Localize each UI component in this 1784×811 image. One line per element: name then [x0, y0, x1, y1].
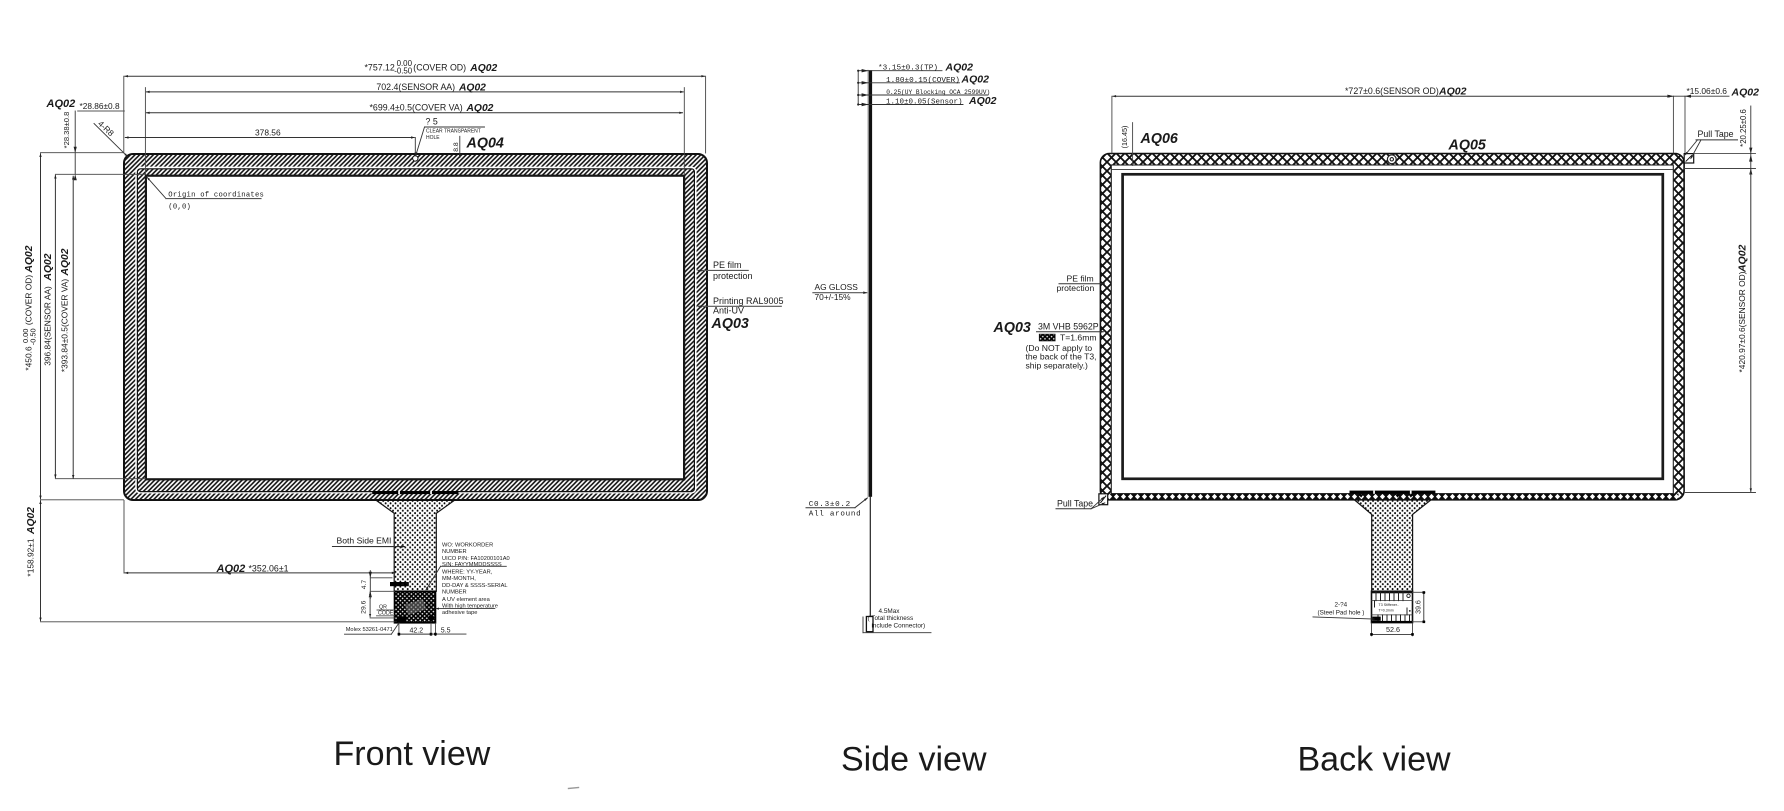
svg-text:AQ02: AQ02 [46, 98, 76, 110]
svg-text:include Connector): include Connector) [872, 622, 926, 629]
svg-text:MM-MONTH,: MM-MONTH, [442, 576, 476, 582]
svg-text:PE film: PE film [1067, 273, 1094, 283]
svg-text:AQ02: AQ02 [24, 245, 35, 273]
svg-text:4.7: 4.7 [361, 580, 368, 590]
svg-text:3M VHB 5962P: 3M VHB 5962P [1038, 322, 1099, 332]
svg-text:T=1.6mm: T=1.6mm [1060, 332, 1097, 342]
svg-text:AQ02: AQ02 [216, 563, 246, 575]
svg-text:QR: QR [379, 604, 387, 610]
svg-text:702.4(SENSOR AA): 702.4(SENSOR AA) [376, 82, 455, 92]
svg-text:adhesive tape: adhesive tape [442, 610, 477, 616]
svg-text:ship separately.): ship separately.) [1026, 360, 1089, 370]
svg-text:( Total thickness: ( Total thickness [868, 615, 914, 622]
svg-text:*158.92±1: *158.92±1 [26, 538, 36, 576]
svg-text:(Steel Pad hole ): (Steel Pad hole ) [1318, 610, 1365, 617]
svg-text:*3.15±0.3(TP): *3.15±0.3(TP) [878, 65, 938, 73]
svg-text:(COVER OD): (COVER OD) [24, 275, 34, 325]
svg-text:*757.12: *757.12 [365, 62, 395, 72]
svg-text:1.10±0.05(Sensor): 1.10±0.05(Sensor) [886, 99, 963, 107]
svg-text:AQ02: AQ02 [1731, 87, 1760, 99]
svg-text:All around: All around [809, 510, 862, 518]
svg-text:29.6: 29.6 [360, 600, 367, 613]
svg-text:T=0.3mm: T=0.3mm [1379, 609, 1394, 613]
svg-text:AQ05: AQ05 [1448, 138, 1487, 154]
svg-text:2-?4: 2-?4 [1335, 601, 1348, 608]
svg-text:AQ02: AQ02 [961, 73, 990, 85]
svg-text:AQ02: AQ02 [1438, 86, 1467, 98]
svg-text:5.5: 5.5 [441, 627, 451, 634]
svg-text:T3 Stiffener..: T3 Stiffener.. [1379, 603, 1399, 607]
svg-text:AQ02: AQ02 [466, 103, 494, 114]
svg-text:CLEAR TRANSPARENT: CLEAR TRANSPARENT [426, 129, 481, 135]
svg-text:AQ02: AQ02 [43, 253, 54, 281]
svg-text:378.56: 378.56 [255, 127, 281, 137]
svg-text:4.5Max: 4.5Max [879, 608, 901, 615]
svg-text:*393.84±0.5(COVER VA): *393.84±0.5(COVER VA) [60, 279, 70, 373]
svg-text:396.84(SENSOR AA): 396.84(SENSOR AA) [43, 286, 53, 366]
svg-text:AQ04: AQ04 [466, 135, 504, 151]
svg-text:42.2: 42.2 [410, 627, 424, 634]
svg-text:*28.38±0.8: *28.38±0.8 [62, 112, 71, 149]
svg-text:AQ02: AQ02 [968, 95, 997, 107]
svg-text:52.6: 52.6 [1386, 625, 1400, 634]
svg-text:AQ02: AQ02 [458, 83, 486, 94]
svg-text:AQ03: AQ03 [711, 316, 749, 332]
svg-text:70+/-15%: 70+/-15% [815, 292, 852, 302]
svg-text:Molex 53261-0471: Molex 53261-0471 [346, 627, 393, 633]
svg-text:*727±0.6(SENSOR OD): *727±0.6(SENSOR OD) [1345, 86, 1439, 96]
svg-text:AG GLOSS: AG GLOSS [815, 282, 859, 292]
svg-text:S/N: FAYYMMDDSSSS: S/N: FAYYMMDDSSSS [442, 562, 502, 568]
svg-text:Pull Tape: Pull Tape [1057, 499, 1093, 509]
svg-text:AQ02: AQ02 [469, 63, 497, 74]
svg-text:Origin of coordinates: Origin of coordinates [168, 191, 264, 199]
svg-text:-0.50: -0.50 [394, 67, 413, 76]
svg-text:(0,0): (0,0) [168, 204, 191, 212]
svg-text:WO: WORKORDER: WO: WORKORDER [442, 542, 493, 548]
svg-text:protection: protection [1057, 283, 1095, 293]
svg-text:*20.25±0.6: *20.25±0.6 [1739, 109, 1748, 147]
svg-text:*15.06±0.6: *15.06±0.6 [1687, 86, 1728, 96]
svg-text:Printing RAL9005: Printing RAL9005 [713, 296, 784, 306]
svg-text:protection: protection [713, 271, 753, 281]
svg-text:*352.06±1: *352.06±1 [249, 563, 289, 573]
svg-text:WHERE: YY-YEAR,: WHERE: YY-YEAR, [442, 570, 493, 576]
svg-text:AQ02: AQ02 [26, 507, 37, 535]
svg-text:4.5: 4.5 [401, 582, 409, 588]
svg-text:AQ02: AQ02 [945, 61, 974, 73]
svg-text:Front view: Front view [334, 735, 491, 773]
svg-text:AQ03: AQ03 [993, 320, 1031, 336]
svg-text:? 5: ? 5 [426, 116, 438, 126]
svg-text:DD-DAY & SSSS-SERIAL: DD-DAY & SSSS-SERIAL [442, 583, 508, 589]
svg-text:8.8: 8.8 [453, 142, 460, 152]
svg-text:A UV element area: A UV element area [442, 597, 491, 603]
svg-text:Both Side EMI: Both Side EMI [337, 536, 392, 546]
svg-text:Pull Tape: Pull Tape [1698, 129, 1734, 139]
svg-text:Anti-UV: Anti-UV [713, 305, 744, 315]
svg-text:*28.86±0.8: *28.86±0.8 [80, 101, 120, 111]
svg-text:*420.97±0.6(SENSOR OD): *420.97±0.6(SENSOR OD) [1737, 271, 1747, 372]
svg-text:Side view: Side view [841, 741, 987, 779]
svg-text:(16.45): (16.45) [1120, 126, 1129, 149]
svg-text:1.80±0.15(COVER): 1.80±0.15(COVER) [886, 77, 960, 85]
svg-text:*699.4±0.5(COVER VA): *699.4±0.5(COVER VA) [370, 102, 463, 112]
svg-text:Back view: Back view [1298, 741, 1451, 779]
svg-text:NUMBER: NUMBER [442, 590, 467, 596]
svg-text:AQ06: AQ06 [1140, 131, 1179, 147]
svg-text:39.6: 39.6 [1415, 600, 1422, 614]
svg-text:*450.6: *450.6 [24, 346, 34, 371]
svg-text:HOLE: HOLE [426, 135, 440, 141]
svg-text:-0.50: -0.50 [28, 328, 37, 345]
svg-text:PE film: PE film [713, 260, 742, 270]
svg-text:AQ02: AQ02 [60, 248, 71, 276]
svg-text:NUMBER: NUMBER [442, 549, 467, 555]
svg-text:AQ02: AQ02 [1736, 244, 1748, 273]
svg-text:(COVER OD): (COVER OD) [413, 62, 466, 72]
